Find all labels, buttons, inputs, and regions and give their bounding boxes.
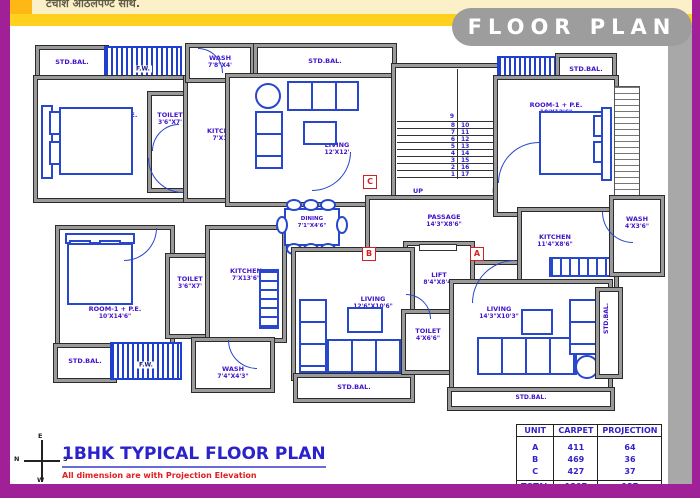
cell-unit: C [517,465,554,481]
cell-carpet: 411 [554,437,598,454]
room-dim: 10'X14'6" [59,313,171,321]
toilet-bottom: TOILET 4'X6'6" [402,310,454,374]
room-label: DINING 7'1"X4'6" [286,216,338,230]
room-name: LIVING [287,141,387,149]
room-name: KITCHEN [521,233,589,241]
dining-chair [276,216,288,234]
balcony-right-vertical: STD.BAL. [596,288,622,378]
cell-projection: 37 [598,465,662,481]
cell-unit: A [517,437,554,454]
room-label: TOILET 3'6"X7' [169,275,211,291]
round-table [255,83,281,109]
unit-marker-b: B [362,247,376,261]
kitchen-bottom: KITCHEN 7'X13'6" [206,226,286,342]
sofa [255,111,283,169]
floor-plan-page: टर्चांश आठलपण्ट साथ. FLOOR PLAN STD.BAL.… [0,0,700,498]
room-label: TOILET 4'X6'6" [405,327,451,343]
balcony-label: STD.BAL. [39,58,105,66]
living-bottom-middle: LIVING 12'6"X10'6" [292,248,414,380]
room-name: ROOM-1 + P.E. [59,305,171,313]
right-gray-strip [668,30,692,484]
col-header-unit: UNIT [517,425,554,437]
marathi-caption: टर्चांश आठलपण्ट साथ. [46,0,140,11]
room-dim: 7'4"X4'3" [195,373,271,381]
balcony-label: STD.BAL. [257,57,393,65]
door-arc [472,260,515,303]
cell-projection: 36 [598,453,662,465]
sofa [299,299,327,373]
lift-door [419,244,457,251]
dining-table: DINING 7'1"X4'6" [284,208,340,246]
compass-north: N [14,455,19,463]
fw-label: F.W. [106,56,180,75]
table-row: B 469 36 [517,453,662,465]
sofa [477,337,577,375]
stair-step-9: 9 [447,113,457,120]
room-1-top-right: ROOM-1 + P.E. 10'X12'6" [494,76,618,216]
dining-chair [286,199,302,211]
room-name: ROOM-1 + P.E. [497,101,615,109]
room-name: LIVING [335,295,411,303]
cell-unit: B [517,453,554,465]
kitchen-counter [259,269,279,329]
balcony-bottom-left: STD.BAL. [54,344,116,382]
col-header-projection: PROJECTION [598,425,662,437]
corner-gold-square [10,0,32,14]
floor-plan-title-pill: FLOOR PLAN [452,8,692,46]
col-header-carpet: CARPET [554,425,598,437]
unit-marker-c: C [363,175,377,189]
frame-left [0,0,10,498]
compass-west: W [37,476,44,484]
stair-steps-right: 1011 1213 1415 1617 [461,122,481,178]
sofa [327,339,409,373]
room-name: DINING [286,216,338,223]
table-row: A 411 64 [517,437,662,454]
room-dim: 4'X6'6" [405,335,451,343]
cell-projection: 64 [598,437,662,454]
kitchen-counter [549,257,615,277]
room-name: WASH [195,365,271,373]
plan-title: 1BHK TYPICAL FLOOR PLAN [62,444,326,468]
dining-chair [320,199,336,211]
balcony-label: STD.BAL. [603,303,611,334]
bed-mattress [59,107,133,175]
frame-right [692,0,700,498]
room-dim: 11'4"X8'6" [521,241,589,249]
room-label: ROOM-1 + P.E. 10'X14'6" [59,305,171,321]
room-dim: 7'1"X4'6" [286,223,338,230]
stair-up-label: UP [413,187,423,195]
coffee-table [303,121,337,145]
plan-subtitle: All dimension are with Projection Elevat… [62,471,257,480]
room-label: KITCHEN 11'4"X8'6" [521,233,589,249]
room-name: TOILET [169,275,211,283]
dining-chair [336,216,348,234]
coffee-table [521,309,553,335]
room-name: LIFT [407,271,471,279]
stair-steps-left: 87 65 43 21 [435,122,455,178]
cell-carpet: 469 [554,453,598,465]
balcony-label: STD.BAL. [57,357,113,365]
room-label: WASH 7'4"X4'3" [195,365,271,381]
balcony-bottom-right: STD.BAL. [448,388,614,410]
fw-label: F.W. [112,352,180,371]
sofa [287,81,359,111]
dining-chair [303,199,319,211]
room-name: TOILET [405,327,451,335]
unit-marker-a: A [470,247,484,261]
room-1-bottom-left: ROOM-1 + P.E. 10'X14'6" [56,226,174,352]
frame-bottom [0,484,700,498]
balcony-label: STD.BAL. [451,394,611,402]
balcony-railing-right [614,86,640,208]
table-header-row: UNIT CARPET PROJECTION [517,425,662,437]
room-dim: 3'6"X7' [169,283,211,291]
compass-horizontal-line [24,460,60,462]
page-title: FLOOR PLAN [468,15,677,39]
area-table: UNIT CARPET PROJECTION A 411 64 B 469 36… [516,424,662,493]
room-dim: 14'3"X8'6" [369,221,519,229]
compass-east: E [38,432,42,440]
balcony-bottom-center: STD.BAL. [294,374,414,402]
bed-headboard [601,107,612,181]
window-bottom-left: F.W. [110,342,182,380]
balcony-label: STD.BAL. [297,383,411,391]
table-row: C 427 37 [517,465,662,481]
cell-carpet: 427 [554,465,598,481]
balcony-label: STD.BAL. [559,65,613,73]
coffee-table [347,307,383,333]
